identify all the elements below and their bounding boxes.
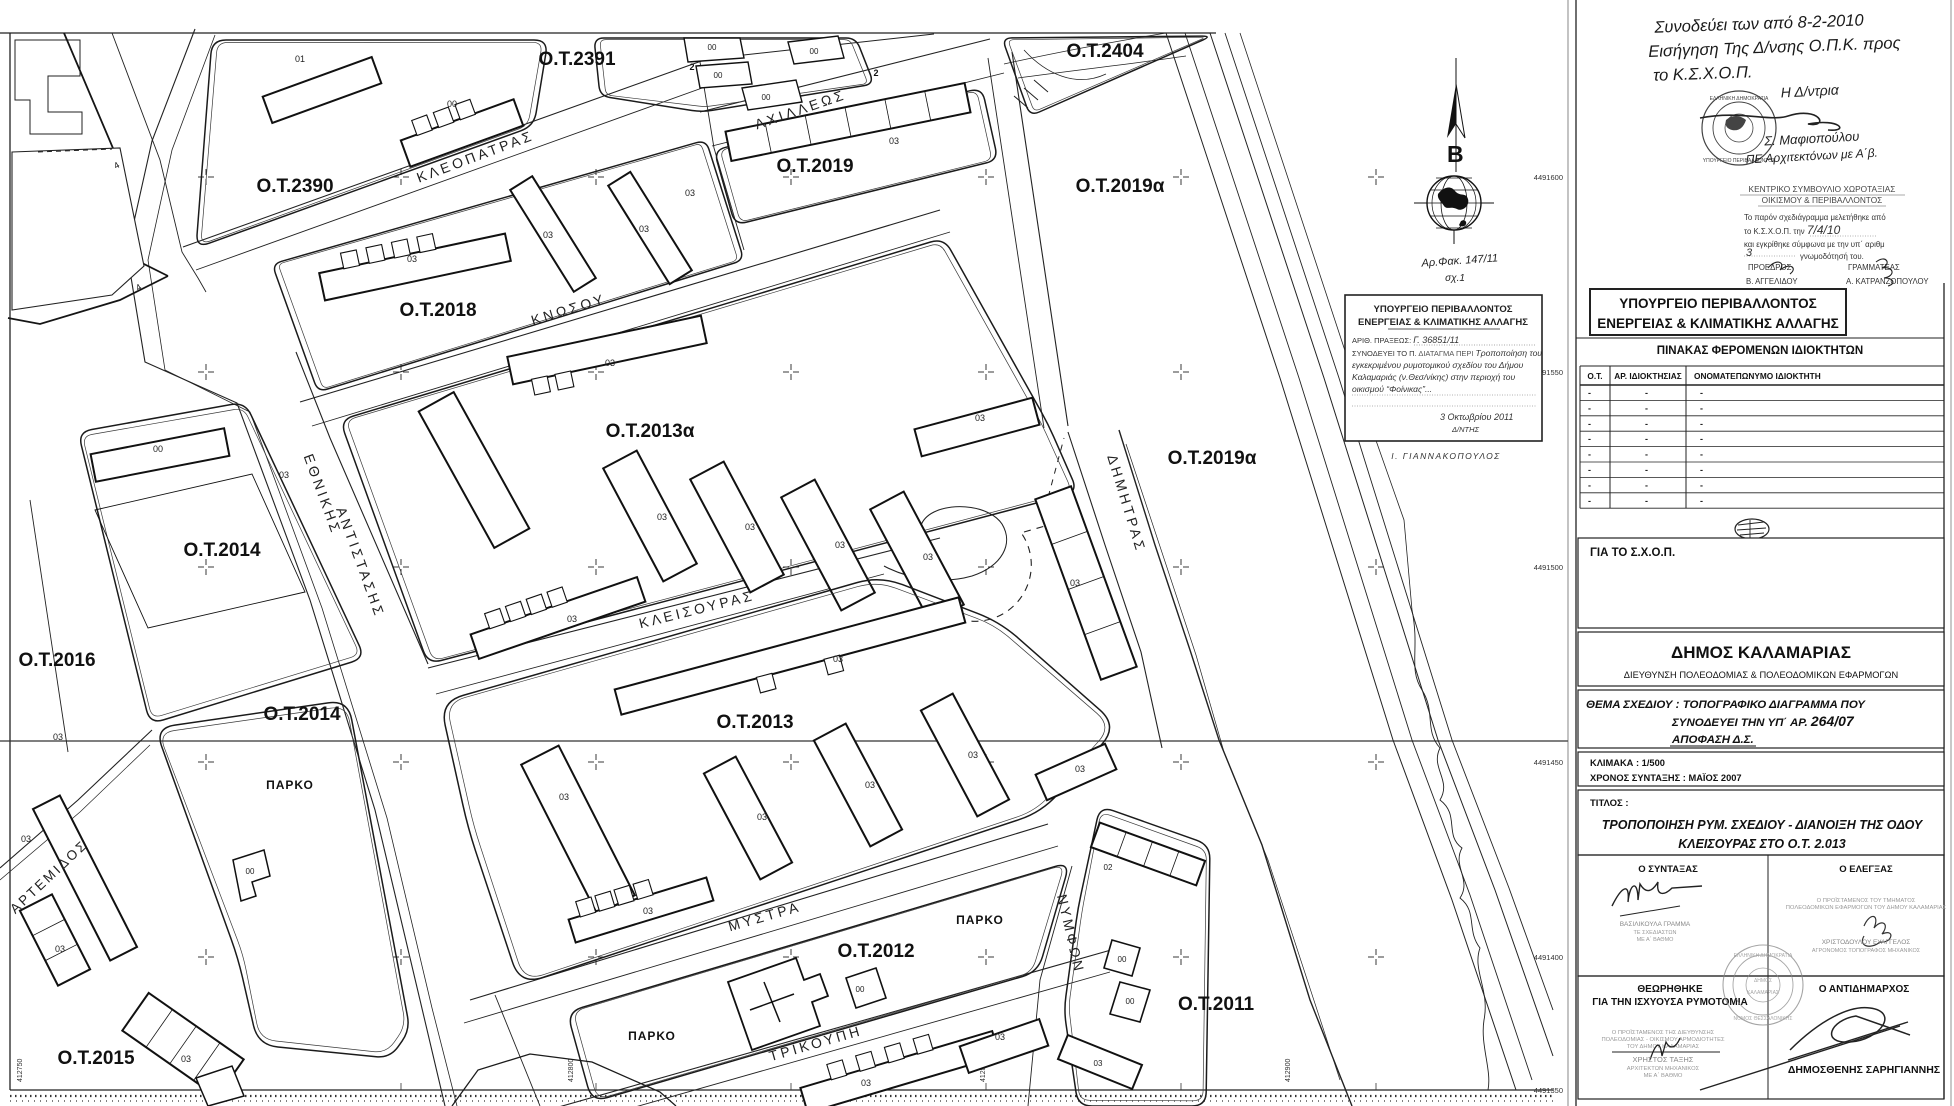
svg-text:Ο.Τ.2019: Ο.Τ.2019 [776,156,853,177]
svg-text:ΠΑΡΚΟ: ΠΑΡΚΟ [266,778,314,792]
svg-text:00: 00 [1126,997,1135,1006]
svg-text:Ο.Τ.2018: Ο.Τ.2018 [399,300,476,321]
svg-text:-: - [1645,403,1648,413]
svg-text:-: - [1645,450,1648,460]
svg-text:Το παρόν σχεδιάγραμμα μελετήθη: Το παρόν σχεδιάγραμμα μελετήθηκε από [1744,213,1886,222]
svg-text:03: 03 [685,188,695,198]
svg-text:ΟΝΟΜΑΤΕΠΩΝΥΜΟ ΙΔΙΟΚΤΗΤΗ: ΟΝΟΜΑΤΕΠΩΝΥΜΟ ΙΔΙΟΚΤΗΤΗ [1694,371,1821,381]
svg-text:ΥΠΟΥΡΓΕΙΟ ΠΕΡΙΒΑΛΛΟΝΤΟΣ: ΥΠΟΥΡΓΕΙΟ ΠΕΡΙΒΑΛΛΟΝΤΟΣ [1374,304,1513,315]
svg-text:412900: 412900 [1285,1059,1292,1082]
svg-text:2: 2 [873,68,878,78]
svg-text:03: 03 [643,906,653,916]
svg-text:ΓΙΑ ΤΗΝ ΙΣΧΥΟΥΣΑ ΡΥΜΟΤΟΜΙΑ: ΓΙΑ ΤΗΝ ΙΣΧΥΟΥΣΑ ΡΥΜΟΤΟΜΙΑ [1592,997,1748,1008]
svg-text:Ο.Τ.2012: Ο.Τ.2012 [837,941,914,962]
svg-text:03: 03 [181,1054,191,1064]
svg-text:3: 3 [1746,247,1753,259]
svg-text:ΕΛΛΗΝΙΚΗ ΔΗΜΟΚΡΑΤΙΑ: ΕΛΛΗΝΙΚΗ ΔΗΜΟΚΡΑΤΙΑ [1710,96,1769,102]
svg-text:-: - [1700,496,1703,506]
svg-text:03: 03 [865,780,875,790]
svg-text:ΔΗΜΟΣ ΚΑΛΑΜΑΡΙΑΣ: ΔΗΜΟΣ ΚΑΛΑΜΑΡΙΑΣ [1671,643,1851,662]
svg-text:03: 03 [1075,764,1085,774]
svg-text:Ο ΠΡΟΪΣΤΑΜΕΝΟΣ ΤΟΥ ΤΜΗΜΑΤΟΣ: Ο ΠΡΟΪΣΤΑΜΕΝΟΣ ΤΟΥ ΤΜΗΜΑΤΟΣ [1817,897,1916,904]
svg-text:03: 03 [889,136,899,146]
svg-text:00: 00 [810,47,819,56]
svg-text:ΓΙΑ ΤΟ Σ.Χ.Ο.Π.: ΓΙΑ ΤΟ Σ.Χ.Ο.Π. [1590,547,1675,559]
svg-text:4491600: 4491600 [1534,173,1563,182]
svg-text:00: 00 [447,99,457,109]
svg-text:ΠΟΛΕΟΔΟΜΙΚΩΝ ΕΦΑΡΜΟΓΩΝ ΤΟΥ ΔΗΜ: ΠΟΛΕΟΔΟΜΙΚΩΝ ΕΦΑΡΜΟΓΩΝ ΤΟΥ ΔΗΜΟΥ ΚΑΛΑΜΑΡ… [1786,905,1947,911]
svg-text:00: 00 [762,93,771,102]
svg-text:-: - [1588,403,1591,413]
svg-text:03: 03 [923,552,933,562]
svg-text:00: 00 [856,985,865,994]
svg-text:Ο.Τ.2011: Ο.Τ.2011 [1178,994,1255,1015]
svg-text:3 Οκτωβρίου 2011: 3 Οκτωβρίου 2011 [1440,412,1513,422]
svg-text:Ο.Τ.2015: Ο.Τ.2015 [57,1048,135,1069]
svg-text:03: 03 [543,230,553,240]
svg-text:Η Δ/ντρια: Η Δ/ντρια [1780,81,1840,100]
svg-text:4491400: 4491400 [1534,953,1563,962]
svg-text:εγκεκριμένου ρυμοτομικού σχεδί: εγκεκριμένου ρυμοτομικού σχεδίου του Δήμ… [1352,360,1524,370]
svg-text:ΥΠΟΥΡΓΕΙΟ ΠΕΡΙΒΑΛΛΟΝΤΟΣ: ΥΠΟΥΡΓΕΙΟ ΠΕΡΙΒΑΛΛΟΝΤΟΣ [1619,296,1817,311]
svg-text:ΑΡ. ΙΔΙΟΚΤΗΣΙΑΣ: ΑΡ. ΙΔΙΟΚΤΗΣΙΑΣ [1614,371,1681,381]
svg-text:ΝΟΜΟΣ ΘΕΣΣΑΛΟΝΙΚΗΣ: ΝΟΜΟΣ ΘΕΣΣΑΛΟΝΙΚΗΣ [1734,1016,1793,1022]
svg-text:-: - [1588,388,1591,398]
svg-text:ΤΙΤΛΟΣ :: ΤΙΤΛΟΣ : [1590,798,1629,809]
svg-text:00: 00 [714,71,723,80]
svg-text:ΠΟΛΕΟΔΟΜΙΑΣ - ΟΙΚΙΣΜΟΥ ΑΡΜΟΔΙΟ: ΠΟΛΕΟΔΟΜΙΑΣ - ΟΙΚΙΣΜΟΥ ΑΡΜΟΔΙΟΤΗΤΕΣ [1601,1037,1724,1043]
svg-text:-: - [1645,434,1648,444]
svg-text:ΔΗΜΟΣΘΕΝΗΣ ΣΑΡΗΓΙΑΝΝΗΣ: ΔΗΜΟΣΘΕΝΗΣ ΣΑΡΗΓΙΑΝΝΗΣ [1788,1064,1940,1076]
svg-text:03: 03 [657,512,667,522]
svg-text:03: 03 [55,944,65,954]
svg-text:03: 03 [975,413,985,423]
svg-text:σχ.1: σχ.1 [1445,273,1465,284]
svg-text:Ο.Τ.2390: Ο.Τ.2390 [256,176,333,197]
svg-text:Ο ΠΡΟΪΣΤΑΜΕΝΟΣ ΤΗΣ ΔΙΕΥΘΥΝΣΗΣ: Ο ΠΡΟΪΣΤΑΜΕΝΟΣ ΤΗΣ ΔΙΕΥΘΥΝΣΗΣ [1612,1029,1715,1036]
svg-text:Ο.Τ.2404: Ο.Τ.2404 [1066,41,1144,62]
svg-text:03: 03 [21,834,31,844]
svg-text:2: 2 [689,62,694,72]
svg-text:Ι. ΓΙΑΝΝΑΚΟΠΟΥΛΟΣ: Ι. ΓΙΑΝΝΑΚΟΠΟΥΛΟΣ [1391,451,1501,461]
svg-text:Ο.Τ.2391: Ο.Τ.2391 [538,49,616,70]
svg-text:03: 03 [605,358,615,368]
svg-text:ΚΕΝΤΡΙΚΟ ΣΥΜΒΟΥΛΙΟ ΧΩΡΟΤΑΞΙΑΣ: ΚΕΝΤΡΙΚΟ ΣΥΜΒΟΥΛΙΟ ΧΩΡΟΤΑΞΙΑΣ [1749,184,1896,194]
svg-text:Ο.Τ.2019α: Ο.Τ.2019α [1168,448,1257,469]
svg-text:γνωμοδότησή του.: γνωμοδότησή του. [1800,252,1864,261]
svg-text:ΣΥΝΟΔΕΥΕΙ ΤΟ Π. ΔΙΑΤΑΓΜΑ ΠΕΡΙ: ΣΥΝΟΔΕΥΕΙ ΤΟ Π. ΔΙΑΤΑΓΜΑ ΠΕΡΙ Τροποποίησ… [1352,348,1542,358]
svg-text:Ο ΑΝΤΙΔΗΜΑΡΧΟΣ: Ο ΑΝΤΙΔΗΜΑΡΧΟΣ [1819,984,1910,995]
svg-text:Ο.Τ.2013: Ο.Τ.2013 [716,712,793,733]
svg-text:Ο ΣΥΝΤΑΞΑΣ: Ο ΣΥΝΤΑΞΑΣ [1638,864,1698,875]
svg-text:το Κ.Σ.Χ.Ο.Π.: το Κ.Σ.Χ.Ο.Π. [1653,63,1753,84]
svg-text:03: 03 [1070,578,1080,588]
svg-text:ΕΛΛΗΝΙΚΗ ΔΗΜΟΚΡΑΤΙΑ: ΕΛΛΗΝΙΚΗ ΔΗΜΟΚΡΑΤΙΑ [1734,953,1793,959]
svg-text:ΠΑΡΚΟ: ΠΑΡΚΟ [628,1029,676,1043]
svg-text:00: 00 [1118,955,1127,964]
svg-text:Ο.Τ.: Ο.Τ. [1587,371,1602,381]
svg-text:412800: 412800 [568,1059,575,1082]
svg-text:ΘΕΩΡΗΘΗΚΕ: ΘΕΩΡΗΘΗΚΕ [1637,984,1703,995]
svg-text:-: - [1645,388,1648,398]
svg-text:-: - [1700,403,1703,413]
svg-text:ΟΙΚΙΣΜΟΥ & ΠΕΡΙΒΑΛΛΟΝΤΟΣ: ΟΙΚΙΣΜΟΥ & ΠΕΡΙΒΑΛΛΟΝΤΟΣ [1762,195,1883,205]
svg-text:03: 03 [861,1078,871,1088]
svg-text:ΔΗΜΟΣ: ΔΗΜΟΣ [1754,978,1772,984]
svg-text:ΤΕ ΣΧΕΔΙΑΣΤΩΝ: ΤΕ ΣΧΕΔΙΑΣΤΩΝ [1634,930,1677,936]
svg-text:03: 03 [745,522,755,532]
svg-text:ΤΡΟΠΟΠΟΙΗΣΗ ΡΥΜ. ΣΧΕΔΙΟΥ - ΔΙΑ: ΤΡΟΠΟΠΟΙΗΣΗ ΡΥΜ. ΣΧΕΔΙΟΥ - ΔΙΑΝΟΙΞΗ ΤΗΣ … [1602,818,1924,832]
svg-text:-: - [1588,480,1591,490]
svg-text:ΑΠΟΦΑΣΗ Δ.Σ.: ΑΠΟΦΑΣΗ Δ.Σ. [1671,734,1754,746]
svg-text:Δ/ΝΤΗΣ: Δ/ΝΤΗΣ [1451,425,1480,434]
svg-text:-: - [1588,465,1591,475]
svg-text:Β. ΑΓΓΕΛΙΔΟΥ: Β. ΑΓΓΕΛΙΔΟΥ [1746,277,1798,286]
svg-text:03: 03 [567,614,577,624]
svg-text:03: 03 [835,540,845,550]
svg-text:ΧΡΟΝΟΣ ΣΥΝΤΑΞΗΣ : ΜΑΪΟΣ 2007: ΧΡΟΝΟΣ ΣΥΝΤΑΞΗΣ : ΜΑΪΟΣ 2007 [1590,773,1742,783]
svg-text:-: - [1700,450,1703,460]
svg-text:ΕΝΕΡΓΕΙΑΣ & ΚΛΙΜΑΤΙΚΗΣ ΑΛΛΑΓΗΣ: ΕΝΕΡΓΕΙΑΣ & ΚΛΙΜΑΤΙΚΗΣ ΑΛΛΑΓΗΣ [1597,316,1838,331]
svg-text:ΑΓΡΟΝΟΜΟΣ ΤΟΠΟΓΡΑΦΟΣ ΜΗΧΑΝΙΚΟΣ: ΑΓΡΟΝΟΜΟΣ ΤΟΠΟΓΡΑΦΟΣ ΜΗΧΑΝΙΚΟΣ [1812,948,1921,954]
svg-text:και εγκρίθηκε σύμφωνα με την υ: και εγκρίθηκε σύμφωνα με την υπ΄ αριθμ [1744,240,1885,249]
svg-text:ΚΛΙΜΑΚΑ : 1/500: ΚΛΙΜΑΚΑ : 1/500 [1590,758,1665,768]
svg-text:-: - [1588,434,1591,444]
svg-text:4491450: 4491450 [1534,758,1563,767]
svg-text:01: 01 [295,54,305,64]
svg-text:ΠΡΟΕΔΡΟΣ: ΠΡΟΕΔΡΟΣ [1748,263,1792,272]
svg-text:-: - [1645,496,1648,506]
svg-text:03: 03 [833,654,843,664]
svg-text:4491350: 4491350 [1534,1086,1563,1095]
svg-text:-: - [1588,496,1591,506]
svg-text:ΑΡΧΙΤΕΚΤΩΝ ΜΗΧΑΝΙΚΟΣ: ΑΡΧΙΤΕΚΤΩΝ ΜΗΧΑΝΙΚΟΣ [1627,1066,1700,1072]
svg-text:B: B [1447,141,1464,167]
svg-text:03: 03 [639,224,649,234]
svg-text:-: - [1588,450,1591,460]
svg-text:ΒΑΣΙΛΙΚΟΥΛΑ ΓΡΑΜΜΑ: ΒΑΣΙΛΙΚΟΥΛΑ ΓΡΑΜΜΑ [1620,921,1691,928]
svg-text:00: 00 [246,867,255,876]
svg-text:Ο.Τ.2013α: Ο.Τ.2013α [606,421,695,442]
svg-text:-: - [1645,465,1648,475]
svg-text:03: 03 [1094,1059,1103,1068]
svg-text:οικισμού “Φοίνικας”...: οικισμού “Φοίνικας”... [1352,384,1432,394]
svg-text:Ο.Τ.2016: Ο.Τ.2016 [18,650,95,671]
svg-text:Ο ΕΛΕΓΞΑΣ: Ο ΕΛΕΓΞΑΣ [1839,864,1893,875]
svg-text:ΧΡΗΣΤΟΣ ΤΑΞΗΣ: ΧΡΗΣΤΟΣ ΤΑΞΗΣ [1633,1055,1694,1064]
svg-text:03: 03 [757,812,767,822]
svg-text:412750: 412750 [17,1059,24,1082]
svg-text:ΜΕ Α΄ ΒΑΘΜΟ: ΜΕ Α΄ ΒΑΘΜΟ [1637,937,1675,943]
svg-text:ΘΕΜΑ ΣΧΕΔΙΟΥ : ΤΟΠΟΓΡΑΦΙΚΟ ΔΙΑ: ΘΕΜΑ ΣΧΕΔΙΟΥ : ΤΟΠΟΓΡΑΦΙΚΟ ΔΙΑΓΡΑΜΜΑ ΠΟΥ [1586,699,1866,711]
svg-text:ΤΟΥ ΔΗΜΟΥ ΚΑΛΑΜΑΡΙΑΣ: ΤΟΥ ΔΗΜΟΥ ΚΑΛΑΜΑΡΙΑΣ [1627,1044,1700,1050]
svg-text:ΠΙΝΑΚΑΣ ΦΕΡΟΜΕΝΩΝ ΙΔΙΟΚΤΗΤΩΝ: ΠΙΝΑΚΑΣ ΦΕΡΟΜΕΝΩΝ ΙΔΙΟΚΤΗΤΩΝ [1657,345,1863,357]
svg-text:-: - [1700,419,1703,429]
svg-text:00: 00 [708,43,717,52]
svg-text:ΚΑΛΑΜΑΡΙΑΣ: ΚΑΛΑΜΑΡΙΑΣ [1747,990,1779,996]
svg-text:-: - [1645,480,1648,490]
svg-text:-: - [1645,419,1648,429]
svg-text:Α. ΚΑΤΡΑΝΖΟΠΟΥΛΟΥ: Α. ΚΑΤΡΑΝΖΟΠΟΥΛΟΥ [1846,277,1929,286]
svg-text:4491500: 4491500 [1534,563,1563,572]
svg-text:-: - [1700,480,1703,490]
svg-text:-: - [1588,419,1591,429]
svg-text:ΜΕ Α΄ ΒΑΘΜΟ: ΜΕ Α΄ ΒΑΘΜΟ [1644,1073,1683,1079]
svg-text:Ο.Τ.2014: Ο.Τ.2014 [183,540,261,561]
svg-text:Ο.Τ.2019α: Ο.Τ.2019α [1076,176,1165,197]
svg-text:02: 02 [1104,863,1113,872]
svg-text:00: 00 [153,444,163,454]
svg-text:03: 03 [407,254,417,264]
svg-text:Καλαμαριάς (ν.Θεσ/νίκης) στην: Καλαμαριάς (ν.Θεσ/νίκης) στην περιοχή το… [1352,372,1515,382]
svg-text:ΔΙΕΥΘΥΝΣΗ ΠΟΛΕΟΔΟΜΙΑΣ & ΠΟΛΕΟΔ: ΔΙΕΥΘΥΝΣΗ ΠΟΛΕΟΔΟΜΙΑΣ & ΠΟΛΕΟΔΟΜΙΚΩΝ ΕΦΑ… [1624,670,1898,680]
svg-text:ΧΡΙΣΤΟΔΟΥΛΟΥ ΕΥΑΓΓΕΛΟΣ: ΧΡΙΣΤΟΔΟΥΛΟΥ ΕΥΑΓΓΕΛΟΣ [1822,939,1911,946]
svg-text:ΠΑΡΚΟ: ΠΑΡΚΟ [956,913,1004,927]
svg-text:03: 03 [995,1032,1005,1042]
svg-text:ΑΡΙΘ. ΠΡΑΞΕΩΣ: Γ. 36851/11: ΑΡΙΘ. ΠΡΑΞΕΩΣ: Γ. 36851/11 [1352,335,1459,345]
svg-text:03: 03 [53,732,63,742]
svg-text:03: 03 [559,792,569,802]
svg-text:-: - [1700,434,1703,444]
svg-text:ΕΝΕΡΓΕΙΑΣ & ΚΛΙΜΑΤΙΚΗΣ ΑΛΛΑΓΗΣ: ΕΝΕΡΓΕΙΑΣ & ΚΛΙΜΑΤΙΚΗΣ ΑΛΛΑΓΗΣ [1358,317,1528,328]
svg-text:-: - [1700,388,1703,398]
svg-text:03: 03 [968,750,978,760]
svg-text:ΚΛΕΙΣΟΥΡΑΣ ΣΤΟ Ο.Τ. 2.013: ΚΛΕΙΣΟΥΡΑΣ ΣΤΟ Ο.Τ. 2.013 [1678,837,1846,851]
svg-text:-: - [1700,465,1703,475]
svg-text:Ο.Τ.2014: Ο.Τ.2014 [263,704,341,725]
